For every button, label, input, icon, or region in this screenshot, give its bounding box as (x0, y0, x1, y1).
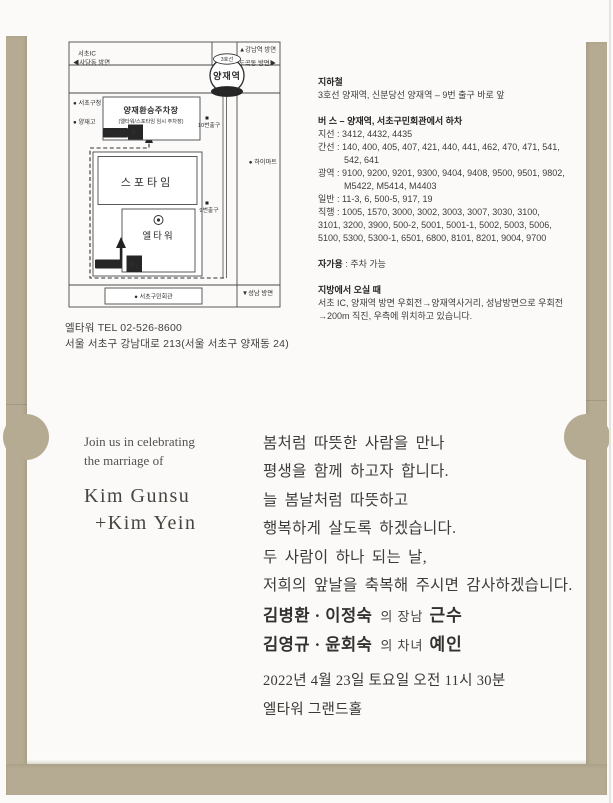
parking-sub-label: (엘타워/스포타임 임시 주차장) (118, 117, 183, 125)
parking-name-label: 양재환승주차장 (123, 105, 178, 115)
exit10-marker (206, 117, 209, 120)
p1-entrance-badge-label: 주차장 입구 (98, 261, 119, 268)
bride-line: 김영규 · 윤회숙의 차녀예인 (263, 630, 463, 659)
car-value: : 주차 가능 (343, 259, 386, 269)
eltower-label: 엘타워 (142, 231, 174, 242)
sinbundang-label: 신분당선 (218, 89, 237, 96)
envelope-thumb-notch-left (3, 414, 49, 460)
english-line1: Join us in celebrating (84, 433, 196, 452)
bus-line: 3101, 3200, 3900, 500-2, 5001, 5001-1, 5… (318, 219, 600, 232)
groom-name: 근수 (429, 606, 462, 625)
bride-parents: 김영규 · 윤회숙 (263, 635, 372, 654)
message-line: 두 사람이 하나 되는 날, (263, 544, 573, 572)
from-region-title: 지방에서 오실 때 (318, 284, 600, 297)
exit10-label: 10번출구 (198, 121, 221, 129)
seocho-ic-label: 서초IC (78, 49, 96, 58)
transit-info: 지하철 3호선 양재역, 신분당선 양재역 – 9번 출구 바로 앞 버 스 –… (318, 76, 600, 323)
envelope-bottom-edge (6, 764, 607, 795)
message-line: 늘 봄날처럼 따뜻하고 (263, 487, 573, 515)
exit9-label: 9번출구 (199, 206, 219, 214)
exit9-marker (206, 202, 209, 205)
p1-label: P₁ (130, 261, 138, 270)
bus-line: 간선 : 140, 400, 405, 407, 421, 440, 441, … (318, 141, 600, 154)
bus-line: 지선 : 3412, 4432, 4435 (318, 128, 600, 141)
subway-desc: 3호선 양재역, 신분당선 양재역 – 9번 출구 바로 앞 (318, 89, 600, 102)
groom-relation: 의 장남 (372, 609, 429, 624)
bus-line: 직행 : 1005, 1570, 3000, 3002, 3003, 3007,… (318, 206, 600, 219)
card-shadow (27, 759, 586, 764)
p2-label: P₂ (132, 130, 140, 137)
station-name-label: 양재역 (213, 70, 241, 81)
bride-name: 예인 (429, 635, 462, 654)
message-line: 봄처럼 따뜻한 사람을 만나 (263, 430, 573, 458)
bus-line: 일반 : 11-3, 6, 500-5, 917, 19 (318, 193, 600, 206)
groom-english-name: Kim Gunsu (84, 483, 196, 510)
community-center-label: ● 서초구민회관 (134, 293, 173, 301)
invitation-message: 봄처럼 따뜻한 사람을 만나 평생을 함께 하고자 합니다. 늘 봄날처럼 따뜻… (263, 430, 573, 600)
bus-title: 버 스 – 양재역, 서초구민회관에서 하차 (318, 115, 600, 128)
message-line: 평생을 함께 하고자 합니다. (263, 458, 573, 486)
bus-line: 광역 : 9100, 9200, 9201, 9300, 9404, 9408,… (318, 167, 600, 180)
english-heading: Join us in celebrating the marriage of K… (84, 433, 196, 537)
yangjae-high-label: ● 양재고 (73, 118, 96, 126)
p2-entrance-badge-label: 주차장 입구 (105, 130, 126, 137)
line3-label: 3호선 (221, 55, 234, 63)
venue-tel: 엘타워 TEL 02-526-8600 (65, 321, 289, 337)
dogok-direction-label: 도곡동 방면▶ (239, 58, 276, 67)
sadang-direction-label: ◀사당동 방면 (73, 58, 110, 67)
bus-line: 5100, 5300, 5300-1, 6501, 6800, 8101, 82… (318, 232, 600, 245)
seocho-gu-office-label: ● 서초구청 (73, 99, 101, 107)
groom-line: 김병환 · 이정숙의 장남근수 (263, 601, 463, 630)
message-line: 저희의 앞날을 축복해 주시면 감사하겠습니다. (263, 572, 573, 600)
groom-parents: 김병환 · 이정숙 (263, 606, 372, 625)
message-line: 행복하게 살도록 하겠습니다. (263, 515, 573, 543)
from-region-line: →200m 직진, 우측에 위치하고 있습니다. (318, 310, 600, 323)
bride-relation: 의 차녀 (372, 638, 429, 653)
photo-edge (609, 0, 611, 803)
event-venue: 엘타워 그랜드홀 (263, 696, 505, 725)
envelope-seam-left (6, 404, 27, 405)
envelope-seam-right (586, 400, 607, 401)
venue-contact: 엘타워 TEL 02-526-8600 서울 서초구 강남대로 213(서울 서… (65, 321, 289, 352)
bus-line: 542, 641 (318, 154, 600, 167)
venue-map: 양재환승주차장 (엘타워/스포타임 임시 주차장) 주차장 입구 P₂ 스포타임… (65, 40, 283, 310)
car-label: 자가용 (318, 259, 343, 269)
english-line2: the marriage of (84, 452, 196, 471)
sportime-label: 스포타임 (121, 176, 173, 189)
bride-english-name: +Kim Yein (84, 510, 196, 537)
from-region-line: 서초 IC, 양재역 방면 우회전→양재역사거리, 성남방면으로 우회전 (318, 297, 600, 310)
gangnam-direction-label: ▲강남역 방면 (239, 45, 276, 54)
event-details: 2022년 4월 23일 토요일 오전 11시 30분 엘타워 그랜드홀 (263, 667, 505, 724)
seongnam-direction-label: ▼성남 방면 (242, 288, 273, 297)
himart-label: ● 하이마트 (249, 158, 278, 166)
subway-title: 지하철 (318, 76, 600, 89)
venue-address: 서울 서초구 강남대로 213(서울 서초구 양재동 24) (65, 337, 289, 353)
parents-lines: 김병환 · 이정숙의 장남근수 김영규 · 윤회숙의 차녀예인 (263, 601, 463, 659)
bus-line: M5422, M5414, M4403 (318, 180, 600, 193)
eltower-pin-dot (157, 218, 160, 221)
event-datetime: 2022년 4월 23일 토요일 오전 11시 30분 (263, 667, 505, 696)
car-info: 자가용 : 주차 가능 (318, 258, 600, 271)
